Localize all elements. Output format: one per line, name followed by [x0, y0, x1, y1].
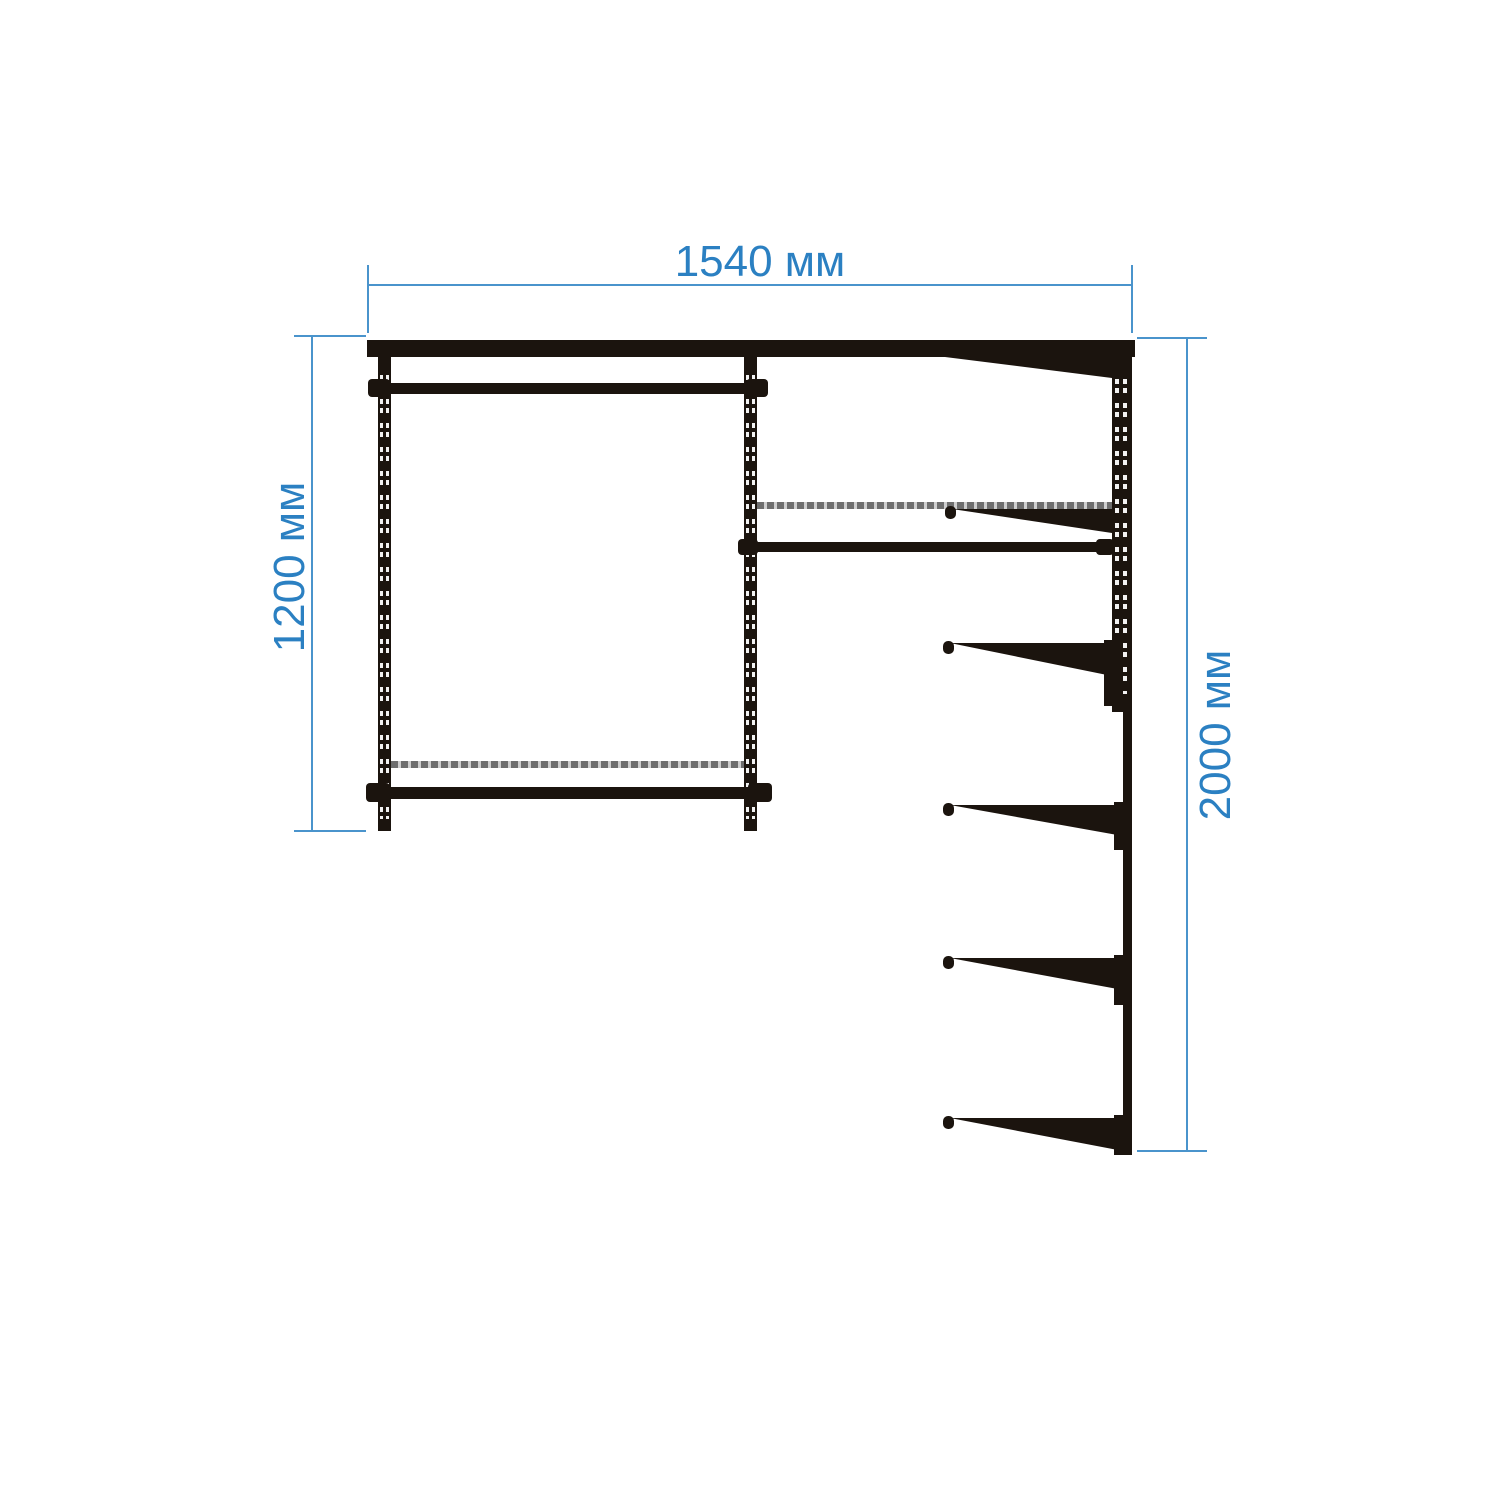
hang-rod-right-cap-left: [738, 539, 758, 555]
bracket-shelf-4-tip: [943, 1116, 954, 1129]
wire-shelf-left: [391, 761, 744, 768]
dim-right-height-tick-top: [1137, 337, 1207, 339]
dim-top-width-extension-left: [367, 265, 369, 333]
dim-left-height-label: 1200 мм: [268, 467, 312, 667]
bracket-shelf-4-arm: [950, 1118, 1123, 1151]
hang-rod-right: [746, 542, 1112, 552]
shelf-bracket-mid-tip: [945, 506, 956, 519]
dim-top-width-label: 1540 мм: [660, 240, 860, 284]
dim-right-height-label: 2000 мм: [1194, 635, 1238, 835]
hang-rod-upper-cap-right: [746, 379, 768, 397]
dim-left-height-tick-top: [294, 335, 366, 337]
bracket-shelf-2-backplate: [1114, 802, 1126, 850]
top-shelf: [367, 340, 1135, 357]
hang-rod-lower-cap-left: [366, 783, 390, 802]
dim-left-height-tick-bottom: [294, 830, 366, 832]
hang-rod-upper-cap-left: [368, 379, 390, 397]
shelf-bracket-mid: [952, 509, 1112, 533]
bracket-shelf-1-arm: [950, 643, 1112, 676]
dim-top-width-line: [368, 284, 1133, 286]
bracket-shelf-3-arm: [950, 958, 1123, 990]
dim-left-height-line: [311, 336, 313, 832]
corner-shelf-bracket: [945, 357, 1112, 378]
wire-shelf-right: [757, 502, 1112, 509]
dim-right-height-line: [1186, 338, 1188, 1152]
bracket-shelf-2-tip: [943, 803, 954, 816]
hang-rod-lower: [372, 787, 768, 799]
bracket-shelf-4-backplate: [1114, 1115, 1126, 1155]
shelving-dimension-diagram: 1540 мм 1200 мм 2000 мм: [0, 0, 1496, 1496]
bracket-shelf-3-tip: [943, 956, 954, 969]
dim-right-height-tick-bottom: [1137, 1150, 1207, 1152]
bracket-shelf-3-backplate: [1114, 955, 1126, 1005]
bracket-shelf-1-tip: [943, 641, 954, 654]
wall-rail-left: [378, 357, 391, 831]
wall-rail-middle: [744, 357, 757, 831]
hang-rod-lower-cap-right: [748, 783, 772, 802]
wall-rail-right-lower: [1123, 712, 1132, 1155]
bracket-shelf-2-arm: [950, 805, 1123, 836]
hang-rod-right-cap-right: [1096, 539, 1114, 555]
bracket-shelf-1-backplate: [1104, 640, 1122, 706]
hang-rod-upper: [374, 383, 764, 394]
dim-top-width-extension-right: [1131, 265, 1133, 333]
